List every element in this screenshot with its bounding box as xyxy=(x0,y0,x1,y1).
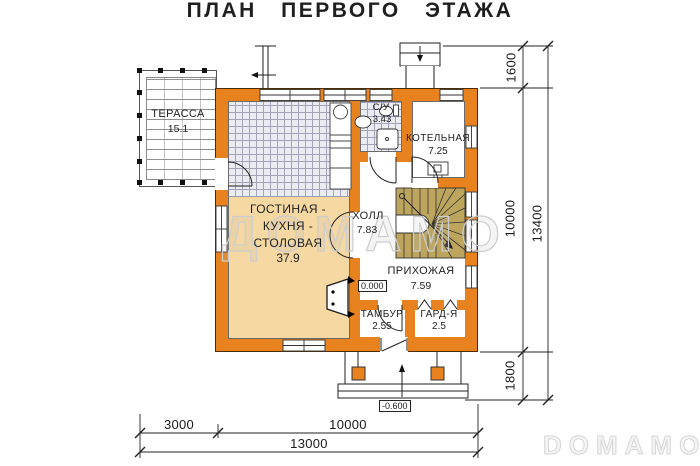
room-label-living: ГОСТИНАЯ - КУХНЯ - СТОЛОВАЯ xyxy=(228,201,348,252)
room-label-bathroom: С/У xyxy=(362,102,400,114)
room-area-terrace: 15.1 xyxy=(143,123,213,135)
room-label-wardrobe: ГАРД-Я xyxy=(409,309,469,321)
room-label-hall: ХОЛЛ xyxy=(338,210,398,222)
watermark-corner: DOMAMO xyxy=(543,430,700,461)
level-marker-floor: 0.000 xyxy=(358,280,387,292)
dim-right-middle: 10000 xyxy=(503,189,518,249)
dim-bottom-left: 3000 xyxy=(149,417,209,432)
dim-right-top: 1600 xyxy=(504,47,519,89)
kitchen-tile-floor xyxy=(228,101,350,197)
balcony-edge-lines xyxy=(251,46,276,88)
porch xyxy=(338,352,468,398)
room-area-boiler: 7.25 xyxy=(404,146,472,158)
room-area-vestibule: 2.55 xyxy=(352,321,412,333)
level-marker-porch: -0.600 xyxy=(379,400,411,412)
room-area-hall: 7.83 xyxy=(337,224,397,236)
room-label-entry-hall: ПРИХОЖАЯ xyxy=(381,265,461,277)
floor-plan-page: ПЛАН ПЕРВОГО ЭТАЖА xyxy=(0,0,700,466)
room-label-boiler: КОТЕЛЬНАЯ xyxy=(404,133,472,145)
room-area-bathroom: 3.43 xyxy=(363,114,401,126)
chimney xyxy=(400,43,440,88)
page-title: ПЛАН ПЕРВОГО ЭТАЖА xyxy=(0,5,700,17)
room-area-living: 37.9 xyxy=(228,252,348,264)
dim-right-bottom: 1800 xyxy=(503,355,518,397)
dim-right-total: 13400 xyxy=(530,194,545,254)
dim-bottom-right: 10000 xyxy=(318,417,378,432)
room-label-terrace: ТЕРАССА xyxy=(143,108,213,120)
dim-bottom-total: 13000 xyxy=(279,436,339,451)
room-label-vestibule: ТАМБУР xyxy=(352,309,412,321)
room-area-wardrobe: 2.5 xyxy=(409,321,469,333)
room-area-entry-hall: 7.59 xyxy=(381,280,461,292)
